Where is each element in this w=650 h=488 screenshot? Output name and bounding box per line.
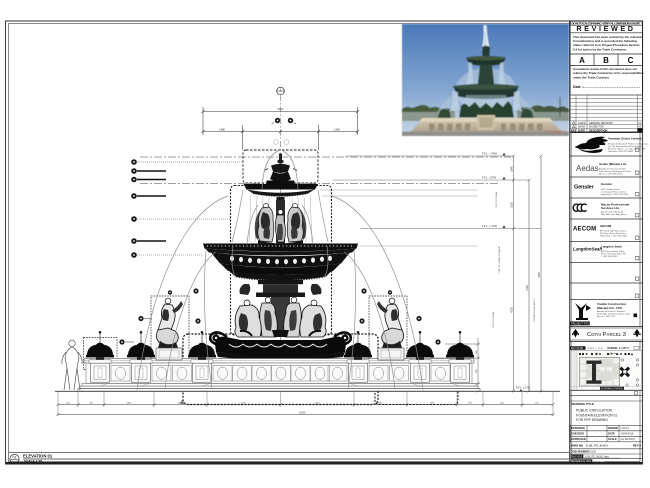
svg-text:AS SHOWN: AS SHOWN	[621, 437, 635, 441]
svg-text:PUBLIC CIRCULATION.: PUBLIC CIRCULATION.	[576, 409, 613, 413]
svg-text:SCALE 1:25: SCALE 1:25	[24, 460, 42, 464]
svg-text:REVIEWED: REVIEWED	[576, 24, 635, 33]
svg-text:GENERAL REVISION: GENERAL REVISION	[589, 122, 613, 125]
svg-text:Hong Kong T +852 3922 9000: Hong Kong T +852 3922 9000	[600, 236, 628, 238]
svg-text:F.F.L. ± 0.00: F.F.L. ± 0.00	[516, 386, 531, 390]
svg-text:© Copyright 2015: © Copyright 2015	[545, 130, 567, 134]
svg-text:APPROVED: APPROVED	[571, 437, 586, 441]
svg-text:3103: 3103	[590, 449, 596, 453]
svg-text:3108_PD_8h001: 3108_PD_8h001	[586, 443, 609, 447]
svg-text:FOR FRP DRAWING: FOR FRP DRAWING	[576, 418, 608, 422]
svg-text:ISSUED FOR: ISSUED FOR	[589, 126, 604, 129]
svg-text:1495: 1495	[127, 403, 133, 405]
svg-text:A: A	[579, 56, 585, 65]
svg-text:PROJECT TITLE: PROJECT TITLE	[571, 322, 591, 326]
svg-text:T +852 2830 3500: T +852 2830 3500	[601, 256, 618, 258]
svg-text:1486: 1486	[334, 127, 340, 131]
svg-text:DRAWING TITLE:: DRAWING TITLE:	[572, 402, 595, 406]
svg-text:B: B	[603, 56, 609, 65]
svg-text:Gensler: Gensler	[574, 185, 594, 191]
svg-text:Aedas: Aedas	[576, 164, 599, 173]
svg-text:Aedas (Macau) Ltd.: Aedas (Macau) Ltd.	[599, 162, 627, 166]
svg-text:SYMMETRICAL ABOUT: SYMMETRICAL ABOUT	[533, 297, 536, 321]
svg-text:AECOM: AECOM	[573, 227, 596, 233]
svg-text:4730: 4730	[511, 307, 514, 313]
svg-text:REV 0: REV 0	[633, 443, 642, 447]
svg-text:-: -	[595, 433, 596, 436]
svg-text:REFERENCE DWG FILE NAME:: REFERENCE DWG FILE NAME:	[571, 460, 605, 463]
svg-text:1030: 1030	[511, 202, 514, 208]
svg-text:10APR: 10APR	[578, 122, 586, 125]
svg-text:ELEVATION 01: ELEVATION 01	[23, 454, 53, 459]
svg-text:-: -	[595, 438, 596, 441]
svg-text:FOUNTAIN LOCATION: FOUNTAIN LOCATION	[601, 387, 623, 390]
svg-text:under the Trade Contract.: under the Trade Contract.	[573, 75, 610, 79]
svg-text:Nam Wah Com. Bldg, Macau: Nam Wah Com. Bldg, Macau	[601, 214, 627, 216]
svg-text:DRAWN: DRAWN	[608, 426, 618, 430]
svg-text:LOACJ: LOACJ	[621, 426, 630, 430]
svg-text:F.F.L. + 7600: F.F.L. + 7600	[482, 152, 497, 156]
svg-text:AECOM: AECOM	[600, 224, 612, 228]
svg-text:TYPE 'F2' FINIAL: TYPE 'F2' FINIAL	[495, 191, 498, 209]
svg-text:F.F.L. + 4730: F.F.L. + 4730	[482, 224, 497, 228]
svg-text:1486: 1486	[219, 127, 225, 131]
svg-text:5.4 for action by the Trade Co: 5.4 for action by the Trade Contractor.	[573, 47, 627, 51]
svg-text:SCALE 1 : 7500: SCALE 1 : 7500	[587, 347, 603, 350]
svg-text:1840: 1840	[511, 166, 514, 172]
svg-text:SCALE: SCALE	[608, 437, 617, 441]
svg-text:PARCEL 1, LOT 2: PARCEL 1, LOT 2	[608, 346, 630, 350]
svg-text:Gensler: Gensler	[601, 182, 613, 186]
svg-text:KEY PLAN: KEY PLAN	[571, 347, 583, 350]
svg-text:CHECKED: CHECKED	[571, 432, 584, 436]
svg-text:DESIGNED: DESIGNED	[571, 426, 585, 430]
svg-text:13426: 13426	[299, 411, 306, 414]
svg-text:Hong Kong T +852 2521 8788: Hong Kong T +852 2521 8788	[601, 194, 629, 196]
svg-text:DATE: DATE	[608, 432, 615, 436]
svg-text:LangdonSeah: LangdonSeah	[573, 247, 602, 252]
svg-text:(Macau) CO., LTD.: (Macau) CO., LTD.	[597, 306, 623, 310]
svg-text:08JAN: 08JAN	[578, 126, 585, 129]
svg-text:Langdon Seah: Langdon Seah	[601, 244, 622, 248]
svg-text:10/04/2016: 10/04/2016	[621, 432, 635, 436]
svg-text:Telephone: (853) 81 118888: Telephone: (853) 81 118888	[608, 151, 634, 153]
svg-text:DWG NO: DWG NO	[571, 443, 584, 447]
svg-text:TYPE 'F4' FINIAL: TYPE 'F4' FINIAL	[492, 311, 495, 329]
svg-text:TYPE 'F3' FINIAL TO BASIN: TYPE 'F3' FINIAL TO BASIN	[498, 246, 501, 274]
svg-text:7600: 7600	[538, 272, 541, 278]
svg-text:Venetian Orient Limited: Venetian Orient Limited	[608, 137, 642, 141]
svg-text:Macau T: 2837 1511: Macau T: 2837 1511	[597, 316, 616, 318]
svg-text:3100: 3100	[278, 107, 284, 111]
svg-text:C: C	[628, 56, 634, 65]
svg-text:F.F.L. +5760: F.F.L. +5760	[482, 176, 497, 180]
svg-text:Services Ltd.: Services Ltd.	[601, 206, 620, 210]
svg-text:Macau, T +853 2833 1133: Macau, T +853 2833 1133	[599, 174, 623, 176]
svg-text:JOB NUMBER:: JOB NUMBER:	[571, 449, 590, 453]
svg-text:Date :: Date :	[573, 85, 583, 89]
svg-text:01: 01	[13, 456, 17, 460]
svg-text:FOUNTAIN ELEVATION 01: FOUNTAIN ELEVATION 01	[576, 413, 617, 417]
svg-text:5760: 5760	[526, 285, 529, 291]
